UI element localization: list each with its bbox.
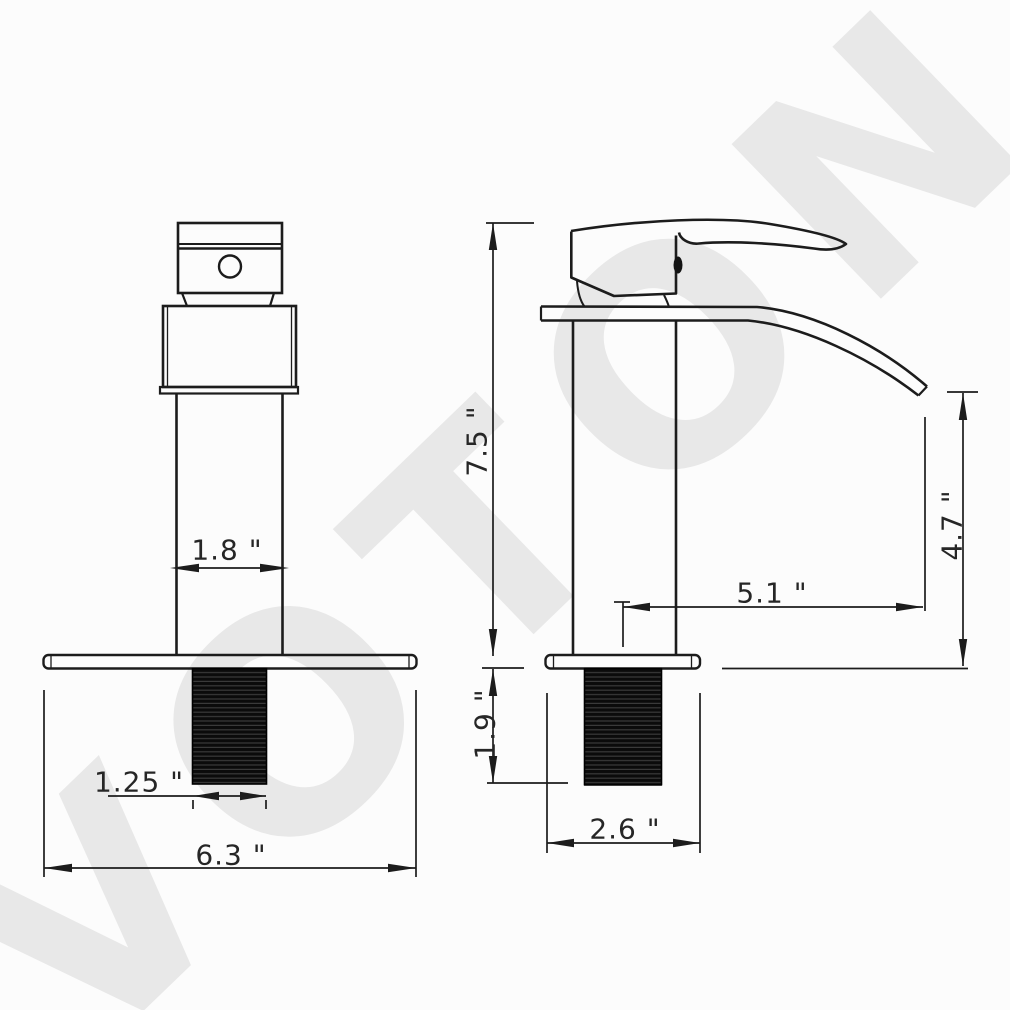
front-view — [44, 223, 417, 784]
deck-plate-side — [546, 655, 701, 669]
waterfall-spout-side — [541, 307, 927, 396]
deck-plate-front — [44, 655, 417, 669]
handle-button-front — [219, 256, 241, 278]
technical-drawing-page: VOTON — [0, 0, 1010, 1010]
dim-label-spout-reach: 5.1 " — [736, 577, 807, 610]
faucet-handle-side — [571, 220, 846, 307]
faucet-column-front — [177, 394, 283, 656]
threaded-shank-side — [585, 669, 662, 786]
dim-label-overall-height: 7.5 " — [461, 405, 494, 476]
dim-label-plate-depth: 2.6 " — [589, 813, 660, 846]
side-view — [541, 220, 927, 785]
faucet-dimension-drawing — [0, 0, 1010, 1010]
dim-label-plate-length: 6.3 " — [195, 839, 266, 872]
dim-label-spout-drop: 4.7 " — [936, 489, 969, 560]
faucet-body-front — [160, 306, 298, 394]
dim-label-shank-length: 1.9 " — [469, 688, 502, 759]
faucet-column-side — [573, 321, 676, 656]
dim-label-column-width: 1.8 " — [191, 534, 262, 567]
handle-pivot-notch — [674, 257, 683, 274]
dim-label-shank-diameter: 1.25 " — [94, 766, 184, 799]
body-base-flange-front — [160, 387, 298, 394]
dimension-lines — [44, 223, 978, 877]
threaded-shank-front — [193, 669, 267, 785]
dimension-spout-reach — [614, 417, 925, 647]
faucet-handle-front — [178, 223, 282, 306]
